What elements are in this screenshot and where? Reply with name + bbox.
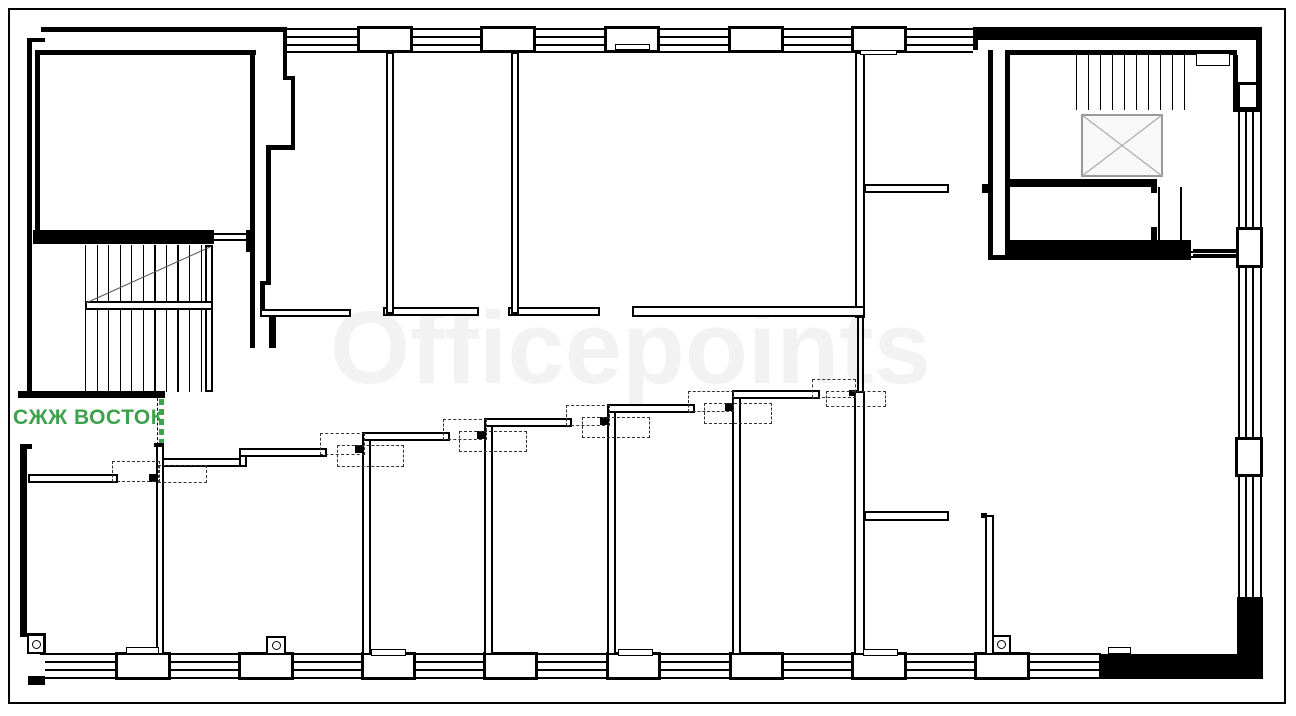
stair-tread [131,310,132,392]
curtain-wall-line [1238,110,1240,597]
partition-wall [607,404,695,413]
stair-tread [1112,54,1113,110]
stair-tread [201,245,202,302]
partition-wall [985,515,994,655]
wall [1233,55,1238,109]
wall [1256,40,1262,110]
wall [291,78,295,147]
curtain-wall-line [45,677,1101,679]
stair-tread [1184,54,1185,110]
column-block [1236,227,1263,268]
floor-plan: Officepoints СЖЖ ВОСТОК [0,0,1296,716]
wall-plate [126,647,159,654]
pivot-circle [32,640,41,649]
wall [973,40,978,50]
curtain-wall-line [862,318,864,392]
wall [988,50,993,258]
stair-tread [166,245,167,302]
column-block [728,26,784,53]
door-opening-dashes [158,465,207,483]
curtain-wall-line [1158,187,1160,240]
wall [1151,179,1157,193]
stair-tread [1136,54,1137,110]
stair-tread [1124,54,1125,110]
curtain-wall-line [1190,251,1238,253]
column-block [238,652,294,680]
curtain-wall-line [213,239,247,241]
wall [27,40,32,398]
column-block [851,26,907,53]
wall [1237,597,1263,656]
stair-tread [108,245,109,302]
wall [1005,55,1010,240]
stair-tread [189,245,190,302]
curtain-wall-line [213,233,247,235]
stair-tread [1088,54,1089,110]
curtain-wall-line [1193,249,1237,251]
curtain-wall-line [857,318,859,392]
wall [20,444,27,637]
column-block [115,652,171,680]
stair-tread [1076,54,1077,110]
partition-wall [732,390,741,655]
curtain-wall-line [45,661,1101,663]
column-block [606,652,661,680]
stair-tread [154,245,155,302]
partition-wall [239,448,327,457]
wall [1006,179,1157,187]
column-block [483,652,538,680]
wall [1151,227,1157,241]
stair-tread [97,245,98,302]
door-opening-dashes [582,417,650,438]
curtain-wall-line [1260,110,1262,597]
wall [973,27,1262,40]
stair-tread [143,310,144,392]
partition-wall [484,418,572,427]
wall-plate [1108,647,1131,654]
partition-wall [484,418,493,655]
wall [246,230,255,252]
partition-wall [362,432,450,441]
partition-wall [85,301,213,310]
elevator-shaft [1081,114,1163,177]
wall [28,676,45,685]
wall [35,50,40,235]
partition-wall [607,404,616,655]
column-block [974,652,1030,680]
wall [41,27,287,32]
curtain-wall-line [45,669,1101,671]
column-block [1235,437,1263,477]
stair-tread [166,310,167,392]
door-opening-dashes [112,461,160,482]
door-opening-dashes [337,445,404,467]
pivot-circle [272,641,281,650]
column-block [851,652,907,680]
curtain-wall-line [1193,254,1237,256]
partition-wall [28,474,118,483]
stair-tread [201,310,202,392]
wall [35,50,256,55]
curtain-wall-line [45,653,1101,655]
wall-plate [860,50,897,55]
partition-wall [854,391,865,655]
stair-tread [1100,54,1101,110]
stair-tread [1148,54,1149,110]
stair-tread [120,310,121,392]
column-block [357,26,413,53]
stair-tread [85,245,86,302]
door-opening-dashes [826,391,886,407]
wall-plate [615,44,650,50]
partition-wall [383,307,479,316]
stair-tread [85,310,86,392]
stair-tread [131,245,132,302]
stair-tread [97,310,98,392]
partition-wall [260,309,351,317]
wall-plate [371,649,406,656]
stair-tread [1172,54,1173,110]
partition-wall [508,307,600,316]
wall [18,391,165,398]
column-block [361,652,416,680]
stair-tread [177,245,178,302]
partition-wall [632,306,865,317]
stair-tread [189,310,190,392]
wall [1005,240,1191,260]
wall-plate [1196,53,1230,66]
wall [250,50,255,232]
column-block [729,652,784,680]
curtain-wall-line [1245,110,1247,597]
curtain-wall-line [1252,110,1254,597]
wall-plate [618,649,653,656]
pivot-circle [997,640,1006,649]
stair-tread [154,310,155,392]
partition-wall [386,52,394,314]
wall [266,150,271,283]
wall [283,27,287,78]
partition-wall [864,511,949,521]
wall [269,317,276,348]
stair-tread [120,245,121,302]
stair-tread [108,310,109,392]
door-opening-dashes [704,403,772,424]
wall-plate [863,649,898,656]
wall [33,230,214,244]
stair-tread [143,245,144,302]
partition-wall [864,184,949,193]
wall [250,252,255,348]
wall [982,184,988,193]
entrance-label: СЖЖ ВОСТОК [13,406,164,430]
wall [1099,654,1263,679]
partition-wall [511,52,519,314]
stair-tread [1160,54,1161,110]
column-block [480,26,536,53]
curtain-wall-line [1180,187,1182,240]
partition-wall [732,390,820,399]
door-opening-dashes [459,431,527,452]
curtain-wall-line [1190,256,1238,258]
wall [260,283,265,312]
stair-tread [177,310,178,392]
partition-wall [205,245,213,392]
wall [988,255,1007,260]
